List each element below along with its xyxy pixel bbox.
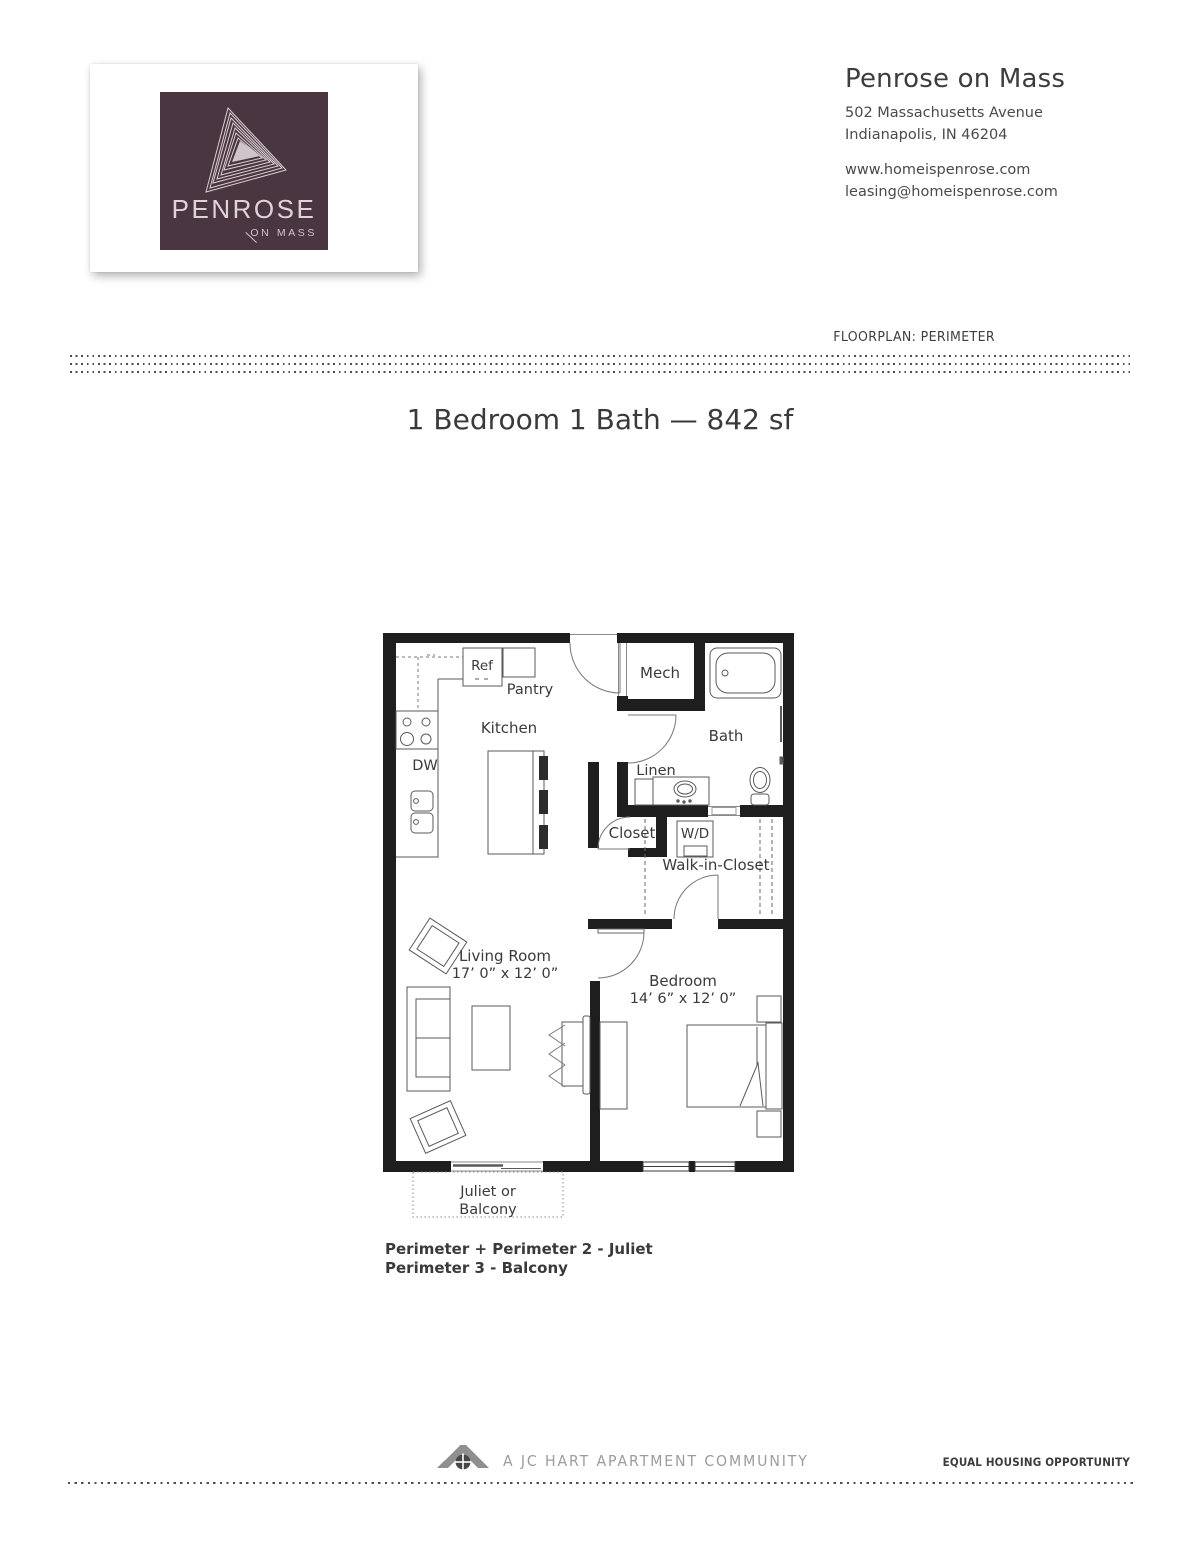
dotted-divider-2 — [70, 363, 1132, 365]
footer-dotted-divider — [68, 1482, 1134, 1484]
nightstand-top — [757, 996, 781, 1022]
armchair-bottom — [410, 1101, 466, 1154]
kitchen-sink — [411, 791, 433, 833]
kitchen-island — [488, 751, 544, 854]
label-mech: Mech — [640, 664, 680, 682]
media-console — [562, 1022, 583, 1086]
label-balcony-2: Balcony — [459, 1202, 517, 1218]
address-line-1: 502 Massachusetts Avenue — [845, 102, 1175, 124]
floorplan-banner: FLOORPLAN: PERIMETER — [716, 329, 995, 345]
header-contact-block: Penrose on Mass 502 Massachusetts Avenue… — [845, 64, 1175, 203]
island-stools — [539, 756, 548, 849]
email-link[interactable]: leasing@homeispenrose.com — [845, 181, 1175, 203]
coffee-table — [472, 1006, 510, 1070]
bed — [687, 1023, 782, 1109]
dotted-divider-1 — [70, 355, 1132, 357]
label-pantry: Pantry — [507, 682, 554, 698]
label-dw: DW — [412, 758, 438, 774]
nightstand-bottom — [757, 1111, 781, 1137]
plan-notes: Perimeter + Perimeter 2 - Juliet Perimet… — [385, 1240, 653, 1278]
unit-heading: 1 Bedroom 1 Bath — 842 sf — [0, 403, 1200, 436]
label-bedroom-dims: 14’ 6” x 12’ 0” — [630, 991, 737, 1007]
label-living-room: Living Room — [459, 947, 551, 965]
bathtub — [710, 648, 781, 698]
equal-housing-text: EQUAL HOUSING OPPORTUNITY — [860, 1455, 1130, 1469]
jchart-house-icon — [437, 1441, 489, 1471]
tv-chevrons — [549, 1025, 565, 1087]
community-tagline: A JC HART APARTMENT COMMUNITY — [503, 1452, 809, 1470]
floorplan-drawing: Ref Pantry Mech Kitchen Bath DW Linen Cl… — [383, 629, 798, 1221]
bath-vanity — [653, 777, 709, 805]
toilet — [750, 768, 770, 806]
label-ref: Ref — [471, 658, 494, 674]
logo-card: PENROSE ON MASS — [90, 64, 418, 272]
logo-sub-text: ON MASS — [250, 227, 317, 239]
linen-shelf — [635, 779, 653, 805]
label-wd: W/D — [681, 826, 709, 842]
stove — [396, 711, 438, 749]
kitchen-fixtures — [396, 648, 548, 857]
label-living-room-dims: 17’ 0” x 12’ 0” — [452, 966, 559, 982]
property-name: Penrose on Mass — [845, 64, 1175, 94]
plan-note-line-2: Perimeter 3 - Balcony — [385, 1259, 653, 1278]
penrose-logo: PENROSE ON MASS — [160, 92, 328, 250]
upper-cabinets-dashed — [396, 655, 463, 709]
floorplan-flyer-page: PENROSE ON MASS Penrose on Mass 502 Mass… — [0, 0, 1200, 1553]
label-balcony-1: Juliet or — [459, 1184, 516, 1200]
bedroom-furniture — [600, 996, 782, 1137]
penrose-triangle-icon — [160, 96, 328, 196]
website-link[interactable]: www.homeispenrose.com — [845, 159, 1175, 181]
robe-hook — [780, 757, 783, 764]
label-closet: Closet — [609, 824, 656, 842]
label-walk-in-closet: Walk-in-Closet — [662, 856, 769, 874]
logo-brand-text: PENROSE — [160, 194, 328, 225]
bedroom-windows — [643, 1162, 735, 1171]
label-bath: Bath — [709, 727, 744, 745]
label-kitchen: Kitchen — [481, 719, 537, 737]
label-linen: Linen — [636, 763, 675, 779]
pantry-shelf — [503, 648, 535, 677]
dotted-divider-3 — [70, 371, 1132, 373]
dresser — [600, 1022, 627, 1109]
address-line-2: Indianapolis, IN 46204 — [845, 124, 1175, 146]
tv-panel — [583, 1016, 590, 1094]
plan-note-line-1: Perimeter + Perimeter 2 - Juliet — [385, 1240, 653, 1259]
juliet-door — [453, 1166, 541, 1169]
sofa — [407, 987, 450, 1091]
label-bedroom: Bedroom — [649, 972, 717, 990]
